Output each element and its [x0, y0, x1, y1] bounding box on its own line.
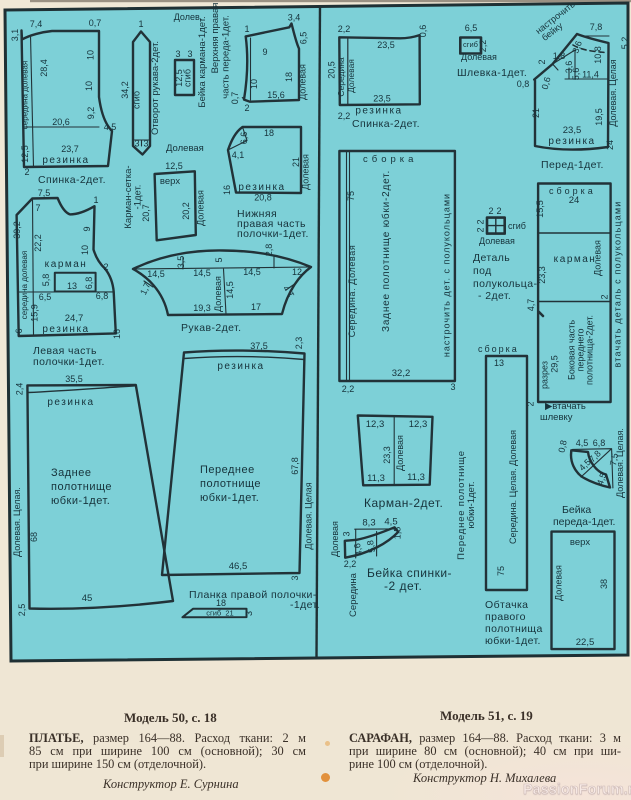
svg-text:1: 1 [138, 19, 143, 29]
svg-text:10: 10 [249, 79, 259, 89]
svg-text:6,5: 6,5 [465, 23, 478, 33]
svg-text:Отворот рукава-2дет.: Отворот рукава-2дет. [150, 41, 161, 135]
svg-text:3,4: 3,4 [288, 13, 301, 23]
svg-text:23,5: 23,5 [373, 94, 391, 104]
svg-text:2,2: 2,2 [478, 40, 488, 53]
svg-text:Верхняя правая: Верхняя правая [210, 3, 221, 74]
svg-text:19,3: 19,3 [193, 303, 211, 313]
svg-text:46,5: 46,5 [229, 561, 248, 572]
svg-text:-1дет.: -1дет. [133, 185, 144, 210]
svg-text:2,3: 2,3 [294, 337, 304, 350]
svg-text:14,5: 14,5 [225, 281, 235, 299]
svg-text:5: 5 [214, 257, 224, 262]
svg-text:под: под [473, 265, 492, 277]
svg-text:18: 18 [216, 598, 226, 608]
svg-text:2: 2 [496, 206, 501, 216]
svg-text:Долевая. Целая.: Долевая. Целая. [615, 428, 625, 498]
svg-text:23,5: 23,5 [563, 125, 582, 136]
svg-text:35,5: 35,5 [65, 374, 83, 384]
svg-text:резинка: резинка [47, 397, 94, 408]
svg-text:2: 2 [600, 294, 610, 299]
svg-text:Долевая: Долевая [346, 59, 356, 93]
svg-text:11,4: 11,4 [582, 70, 599, 80]
svg-text:Спинка-2дет.: Спинка-2дет. [38, 174, 106, 186]
svg-text:шлевку: шлевку [540, 412, 573, 423]
svg-text:3: 3 [450, 382, 455, 392]
svg-text:часть переда-1дет.: часть переда-1дет. [221, 15, 232, 98]
svg-text:Долевая: Долевая [301, 154, 311, 190]
svg-text:21: 21 [531, 108, 541, 118]
svg-text:полотнища: полотнища [485, 623, 543, 635]
svg-text:5,6: 5,6 [571, 68, 581, 81]
svg-text:37,5: 37,5 [250, 341, 268, 351]
svg-text:6,8: 6,8 [593, 438, 606, 448]
svg-text:7: 7 [35, 203, 40, 213]
svg-text:6,8: 6,8 [84, 277, 94, 290]
svg-text:7,5: 7,5 [38, 188, 51, 198]
svg-text:20,8: 20,8 [254, 193, 272, 203]
svg-text:2: 2 [103, 262, 108, 272]
svg-text:7,8: 7,8 [590, 22, 603, 32]
svg-text:2,2: 2,2 [338, 24, 351, 34]
svg-text:28,4: 28,4 [39, 59, 49, 77]
svg-text:4,5: 4,5 [576, 438, 589, 448]
svg-text:8,3: 8,3 [362, 518, 375, 529]
svg-text:юбки-1дет.: юбки-1дет. [466, 482, 477, 529]
svg-text:12,3: 12,3 [366, 419, 385, 430]
svg-text:Долевая: Долевая [554, 565, 564, 601]
svg-text:резинка: резинка [548, 136, 595, 147]
svg-text:10,8: 10,8 [593, 46, 603, 64]
svg-text:карман: карман [554, 254, 597, 265]
svg-text:2,5: 2,5 [17, 604, 27, 617]
svg-text:Середина: Середина [348, 572, 359, 617]
svg-text:29,5: 29,5 [550, 355, 560, 373]
svg-text:21: 21 [291, 157, 301, 167]
svg-text:Обтачка: Обтачка [485, 599, 528, 611]
svg-text:3: 3 [187, 49, 192, 59]
svg-text:3: 3 [244, 611, 254, 616]
svg-text:2,4: 2,4 [15, 383, 25, 396]
svg-text:23,3: 23,3 [382, 446, 392, 464]
svg-text:11,3: 11,3 [407, 472, 425, 483]
svg-text:карман: карман [45, 259, 88, 270]
svg-text:12,3: 12,3 [409, 419, 428, 430]
svg-text:22,2: 22,2 [33, 234, 43, 252]
svg-text:45: 45 [82, 593, 93, 604]
svg-text:17: 17 [251, 302, 261, 312]
svg-text:7,4: 7,4 [30, 19, 43, 29]
svg-text:6: 6 [14, 328, 24, 333]
svg-text:38: 38 [599, 579, 609, 589]
svg-text:75: 75 [496, 566, 506, 576]
svg-text:5,8: 5,8 [365, 539, 377, 553]
svg-text:20,6: 20,6 [52, 117, 70, 127]
svg-text:Заднее: Заднее [51, 467, 92, 479]
svg-text:0,7: 0,7 [89, 18, 102, 28]
svg-text:Рукав-2дет.: Рукав-2дет. [181, 322, 241, 334]
svg-text:полукольца-: полукольца- [473, 278, 537, 290]
svg-text:12: 12 [292, 267, 302, 277]
svg-text:20,2: 20,2 [181, 202, 191, 220]
svg-text:Долевая: Долевая [461, 52, 497, 62]
svg-text:6,5: 6,5 [299, 32, 309, 45]
svg-text:полочки-1дет.: полочки-1дет. [33, 356, 105, 368]
svg-text:4,6: 4,6 [352, 542, 364, 556]
svg-text:2,2: 2,2 [342, 384, 355, 394]
svg-text:3,5: 3,5 [176, 256, 186, 269]
svg-text:10: 10 [80, 245, 90, 255]
svg-text:середина долевая: середина долевая [21, 61, 30, 129]
svg-text:юбки-1дет.: юбки-1дет. [51, 495, 110, 507]
svg-text:Долевая: Долевая [330, 521, 340, 557]
svg-text:34,2: 34,2 [120, 81, 130, 99]
svg-text:4,7: 4,7 [526, 299, 536, 312]
svg-text:2: 2 [24, 167, 29, 177]
svg-text:9,2: 9,2 [86, 107, 96, 120]
svg-text:10: 10 [86, 50, 96, 60]
svg-text:-2 дет.: -2 дет. [384, 579, 422, 593]
svg-text:Деталь: Деталь [473, 252, 510, 264]
svg-text:Долевая: Долевая [479, 236, 515, 246]
svg-text:Середина. Целая. Долевая: Середина. Целая. Долевая [508, 430, 518, 544]
svg-text:32,2: 32,2 [392, 368, 411, 379]
svg-text:Заднее полотнище юбки-2дет.: Заднее полотнище юбки-2дет. [380, 170, 392, 332]
svg-text:9: 9 [262, 47, 267, 57]
svg-text:сборка: сборка [478, 344, 519, 354]
svg-text:3: 3 [175, 49, 180, 59]
svg-text:резинка: резинка [217, 361, 264, 372]
svg-text:11,3: 11,3 [367, 473, 385, 484]
svg-text:Бейка: Бейка [562, 504, 591, 516]
svg-text:1,5: 1,5 [393, 527, 403, 540]
svg-text:полотнище: полотнище [51, 481, 112, 493]
svg-text:Середина: Середина [336, 57, 346, 97]
svg-text:1: 1 [93, 195, 98, 205]
svg-text:19,5: 19,5 [594, 108, 604, 126]
svg-text:1,8: 1,8 [553, 51, 566, 61]
svg-text:Долевая: Долевая [593, 240, 603, 276]
svg-text:16: 16 [222, 185, 232, 195]
svg-text:14,5: 14,5 [243, 267, 261, 277]
svg-text:сгиб 21: сгиб 21 [206, 609, 233, 618]
svg-text:Перед-1дет.: Перед-1дет. [541, 159, 604, 171]
svg-text:Бейка кармана-1дет.: Бейка кармана-1дет. [197, 16, 208, 107]
svg-text:0,7: 0,7 [230, 92, 240, 105]
svg-text:2: 2 [476, 219, 486, 224]
svg-text:0,8: 0,8 [517, 79, 530, 89]
svg-text:1: 1 [244, 24, 249, 34]
svg-text:резинка: резинка [355, 106, 402, 117]
svg-text:2: 2 [476, 227, 486, 232]
svg-text:12,5: 12,5 [165, 161, 183, 171]
svg-text:переда-1дет.: переда-1дет. [553, 516, 615, 528]
svg-text:4,5: 4,5 [384, 517, 397, 528]
svg-text:4,1: 4,1 [232, 150, 245, 160]
svg-text:Спинка-2дет.: Спинка-2дет. [352, 118, 420, 130]
svg-text:23,3: 23,3 [537, 266, 547, 284]
svg-text:Долевая. Целая.: Долевая. Целая. [12, 487, 22, 557]
svg-text:3: 3 [134, 139, 139, 149]
svg-text:67,8: 67,8 [290, 457, 300, 475]
svg-text:Середина. Долевая: Середина. Долевая [347, 245, 357, 338]
svg-text:12,5: 12,5 [20, 145, 30, 163]
svg-text:24,7: 24,7 [65, 313, 84, 324]
svg-text:6,6: 6,6 [239, 132, 249, 145]
svg-text:сгиб: сгиб [508, 221, 526, 231]
svg-text:Долевая: Долевая [166, 143, 204, 154]
svg-text:39,2: 39,2 [12, 221, 22, 239]
svg-text:сгиб: сгиб [132, 91, 142, 109]
svg-text:▶втачать: ▶втачать [545, 401, 586, 412]
svg-text:2,2: 2,2 [338, 111, 351, 121]
svg-text:разрез: разрез [540, 361, 550, 389]
svg-text:резинка: резинка [238, 182, 285, 193]
svg-text:24: 24 [569, 195, 580, 206]
svg-text:полочки-1дет.: полочки-1дет. [237, 228, 309, 240]
svg-text:верх: верх [570, 537, 590, 548]
svg-text:Бейка спинки-: Бейка спинки- [367, 566, 452, 580]
svg-text:6,8: 6,8 [96, 291, 109, 301]
svg-text:- 2дет.: - 2дет. [478, 290, 511, 302]
svg-text:24: 24 [605, 140, 615, 150]
svg-text:Долевая: Долевая [395, 435, 405, 471]
svg-text:резинка: резинка [42, 324, 89, 335]
svg-text:18: 18 [264, 128, 274, 138]
svg-text:13: 13 [67, 281, 77, 291]
svg-text:6,5: 6,5 [39, 292, 52, 302]
svg-text:23,5: 23,5 [377, 40, 395, 50]
svg-text:2: 2 [244, 103, 249, 113]
svg-text:правого: правого [485, 611, 526, 623]
svg-text:Долевая: Долевая [213, 276, 223, 312]
svg-text:16: 16 [112, 329, 122, 339]
svg-text:10: 10 [84, 81, 94, 91]
svg-text:середина долевая: середина долевая [20, 251, 29, 319]
svg-text:20,5: 20,5 [327, 61, 337, 79]
svg-text:Долевая. Целая: Долевая. Целая [304, 482, 314, 549]
svg-text:75: 75 [346, 191, 356, 201]
svg-text:юбки-1дет.: юбки-1дет. [485, 635, 541, 647]
svg-text:полотнища-2дет.: полотнища-2дет. [585, 315, 595, 385]
svg-text:сгиб: сгиб [463, 40, 478, 49]
svg-text:0,6: 0,6 [418, 25, 428, 38]
svg-text:втачать деталь с полукольца: втачать деталь с полукольцами [613, 200, 623, 367]
svg-text:15,9: 15,9 [30, 304, 40, 322]
svg-text:23,7: 23,7 [61, 144, 79, 154]
svg-text:сборка: сборка [363, 154, 417, 165]
svg-text:-1дет.: -1дет. [290, 599, 320, 611]
svg-text:5,2: 5,2 [620, 37, 630, 50]
svg-text:Долевая. Целая: Долевая. Целая [608, 59, 618, 126]
svg-text:Шлевка-1дет.: Шлевка-1дет. [457, 67, 527, 79]
svg-text:2,8: 2,8 [264, 244, 274, 257]
svg-text:Долевая: Долевая [298, 64, 308, 100]
svg-text:4,5: 4,5 [104, 122, 117, 132]
svg-text:3: 3 [290, 575, 300, 580]
svg-text:3: 3 [143, 139, 148, 149]
svg-text:Долевая: Долевая [196, 190, 206, 226]
svg-text:18: 18 [284, 72, 294, 82]
svg-text:68: 68 [29, 532, 39, 542]
svg-text:3,1: 3,1 [10, 29, 20, 42]
svg-text:2: 2 [537, 59, 547, 64]
svg-text:полотнище: полотнище [200, 478, 261, 490]
svg-text:5,8: 5,8 [41, 274, 51, 287]
svg-text:2: 2 [488, 206, 493, 216]
svg-text:2,2: 2,2 [344, 559, 357, 569]
svg-text:резинка: резинка [42, 155, 89, 166]
svg-text:Переднее: Переднее [200, 464, 255, 476]
svg-text:9: 9 [82, 226, 92, 231]
svg-text:14,5: 14,5 [147, 269, 165, 279]
svg-text:13: 13 [494, 358, 504, 368]
svg-text:3: 3 [342, 531, 352, 536]
svg-text:сгиб: сгиб [183, 69, 193, 87]
svg-text:22,5: 22,5 [576, 637, 595, 648]
svg-text:верх: верх [160, 176, 180, 187]
svg-text:14,5: 14,5 [193, 268, 211, 278]
svg-text:настрочить дет. с полукольц: настрочить дет. с полукольцами [442, 193, 452, 357]
svg-text:юбки-1дет.: юбки-1дет. [200, 492, 259, 504]
svg-text:Карман-2дет.: Карман-2дет. [364, 496, 443, 510]
svg-text:15,5: 15,5 [535, 200, 545, 218]
svg-text:15,6: 15,6 [267, 90, 285, 100]
